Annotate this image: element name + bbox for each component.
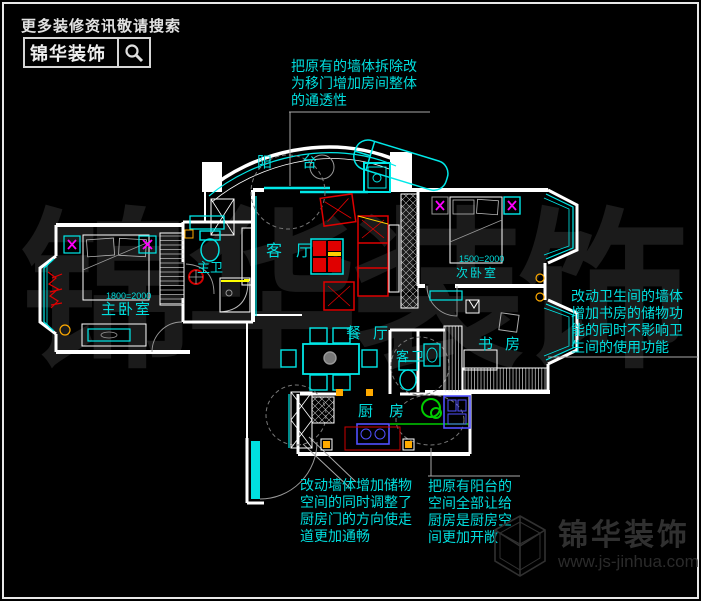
label-master-bed-size: 1800=2000 (106, 291, 151, 301)
hinge-marker-2 (366, 389, 373, 396)
annotation-line: 厨房门的方向使走 (300, 511, 412, 528)
sink-unit (444, 396, 470, 428)
floorplan-image: 锦华装饰 (0, 0, 701, 601)
cube-logo-icon (492, 513, 548, 579)
annotation-line: 道更加通畅 (300, 528, 412, 545)
label-second-bed-size: 1500=2000 (459, 254, 504, 264)
annotation-line: 把原有的墙体拆除改 (291, 58, 417, 75)
search-icon (119, 39, 149, 66)
annotation-line: 的通透性 (291, 92, 417, 109)
annotation-line: 改动墙体增加储物 (300, 477, 412, 494)
label-second-bedroom: 次卧室 (456, 265, 498, 280)
entry-door (251, 441, 260, 499)
annotation-storage-wall: 改动墙体增加储物 空间的同时调整了 厨房门的方向使走 道更加通畅 (300, 477, 412, 545)
washing-machine (364, 163, 390, 192)
entry-shoe-cabinet (291, 392, 312, 448)
annotation-line: 能的同时不影响卫 (571, 322, 683, 339)
label-dining: 餐厅 (346, 325, 400, 342)
search-logo-box: 锦华装饰 (23, 37, 151, 68)
label-guest-bath: 客卫 (396, 349, 426, 364)
annotation-line: 空间全部让给 (428, 495, 512, 512)
label-master-bath: 主卫 (197, 260, 223, 275)
hinge-marker-1 (336, 389, 343, 396)
label-master-bedroom: 主卧室 (101, 301, 152, 318)
label-living: 客厅 (266, 242, 326, 260)
annotation-bathroom-wall: 改动卫生间的墙体 增加书房的储物功 能的同时不影响卫 生间的使用功能 (571, 288, 683, 356)
annotation-line: 生间的使用功能 (571, 339, 683, 356)
annotation-line: 改动卫生间的墙体 (571, 288, 683, 305)
footer-logo: 锦华装饰 www.js-jinhua.com (492, 513, 699, 579)
label-kitchen: 厨房 (358, 403, 420, 420)
footer-brand: 锦华装饰 (558, 520, 699, 552)
kitchen-table (345, 427, 400, 450)
annotation-line: 为移门增加房间整体 (291, 75, 417, 92)
header-tagline: 更多装修资讯敬请搜索 (21, 15, 181, 36)
annotation-line: 把原有阳台的 (428, 478, 512, 495)
plant (422, 399, 441, 418)
footer-website: www.js-jinhua.com (558, 552, 699, 572)
brand-name: 锦华装饰 (25, 40, 117, 66)
annotation-line: 增加书房的储物功 (571, 305, 683, 322)
annotation-line: 空间的同时调整了 (300, 494, 412, 511)
annotation-balcony-wall: 把原有的墙体拆除改 为移门增加房间整体 的通透性 (291, 58, 417, 109)
label-study: 书房 (478, 336, 532, 353)
label-balcony: 阳台 (257, 154, 347, 171)
